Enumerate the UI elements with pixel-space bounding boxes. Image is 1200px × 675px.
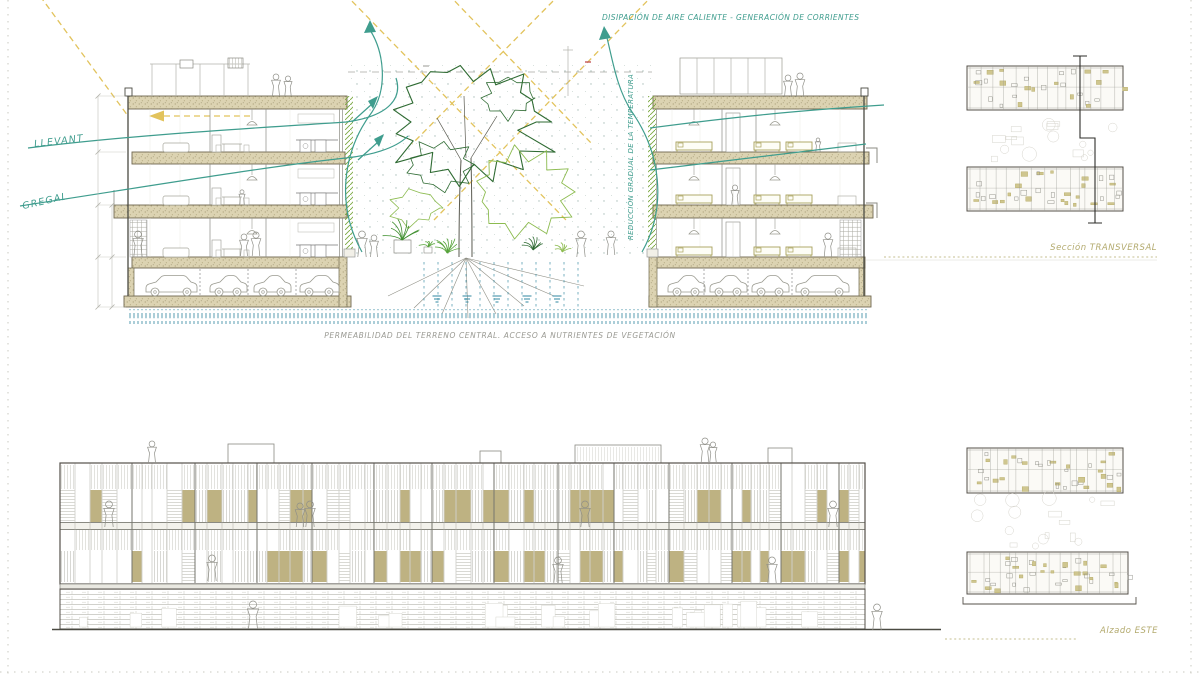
pendant-lamp: [247, 164, 257, 180]
car: [210, 276, 247, 297]
car: [710, 276, 747, 297]
plan-bar: [967, 552, 1132, 594]
elevation-view-bracket: [963, 597, 1136, 604]
bed: [786, 195, 812, 205]
person-figure: [148, 441, 157, 463]
floor-plan-thumbnail-top: [967, 56, 1128, 223]
bed: [676, 195, 712, 205]
person-figure: [709, 442, 717, 462]
permeability-note: PERMEABILIDAD DEL TERRENO CENTRAL. ACCES…: [300, 331, 700, 340]
person-figure: [784, 75, 793, 97]
cross-section: [20, 0, 1157, 324]
pendant-lamp: [689, 164, 699, 180]
parking-left: [146, 269, 339, 296]
person-figure: [767, 557, 777, 583]
person-figure: [872, 604, 882, 630]
architectural-sheet: DISIPACIÓN DE AIRE CALIENTE - GENERACIÓN…: [0, 0, 1200, 675]
pendant-lamp: [247, 218, 257, 234]
bed: [754, 142, 780, 152]
heat-dissipation-note: DISIPACIÓN DE AIRE CALIENTE - GENERACIÓN…: [602, 13, 859, 22]
car: [300, 276, 339, 297]
pendant-lamp: [770, 164, 780, 180]
car: [146, 276, 197, 297]
car: [668, 276, 705, 297]
dimension-lines: [96, 94, 127, 310]
bed: [754, 247, 780, 257]
car: [254, 276, 291, 297]
bed: [676, 142, 712, 152]
parking-right: [668, 269, 849, 296]
car: [796, 276, 849, 297]
left-building: [114, 88, 351, 307]
plan-courtyard-sketch: [971, 491, 1114, 549]
section-view-label: Sección TRANSVERSAL: [955, 243, 1157, 253]
courtyard-dot-grid: [347, 63, 653, 257]
bed: [786, 247, 812, 257]
person-figure: [823, 233, 833, 257]
plan-bar: [967, 448, 1123, 493]
roof-volumes: [228, 444, 792, 463]
pendant-lamp: [247, 109, 257, 125]
person-figure: [284, 76, 292, 96]
permeability-band: [128, 309, 868, 324]
temperature-gradient-note: REDUCCIÓN GRADUAL DE LA TEMPERATURA: [627, 84, 635, 240]
elevation-view-label: Alzado ESTE: [1040, 626, 1158, 636]
bed: [676, 247, 712, 257]
person-figure: [272, 74, 281, 96]
plan-courtyard-sketch: [991, 118, 1117, 161]
person-figure: [251, 232, 261, 256]
plan-bar: [967, 167, 1123, 211]
sun-arrowhead: [149, 111, 164, 122]
car: [752, 276, 789, 297]
pendant-lamp: [770, 218, 780, 234]
bed: [754, 195, 780, 205]
pendant-lamp: [689, 218, 699, 234]
person-figure: [795, 73, 805, 97]
floor-plan-thumbnail-bottom: [963, 448, 1136, 604]
right-building: [649, 88, 877, 307]
east-elevation: [52, 438, 1078, 639]
person-figure: [700, 438, 710, 462]
person-figure: [239, 190, 245, 205]
pendant-lamp: [770, 109, 780, 125]
plan-bar: [967, 66, 1128, 110]
